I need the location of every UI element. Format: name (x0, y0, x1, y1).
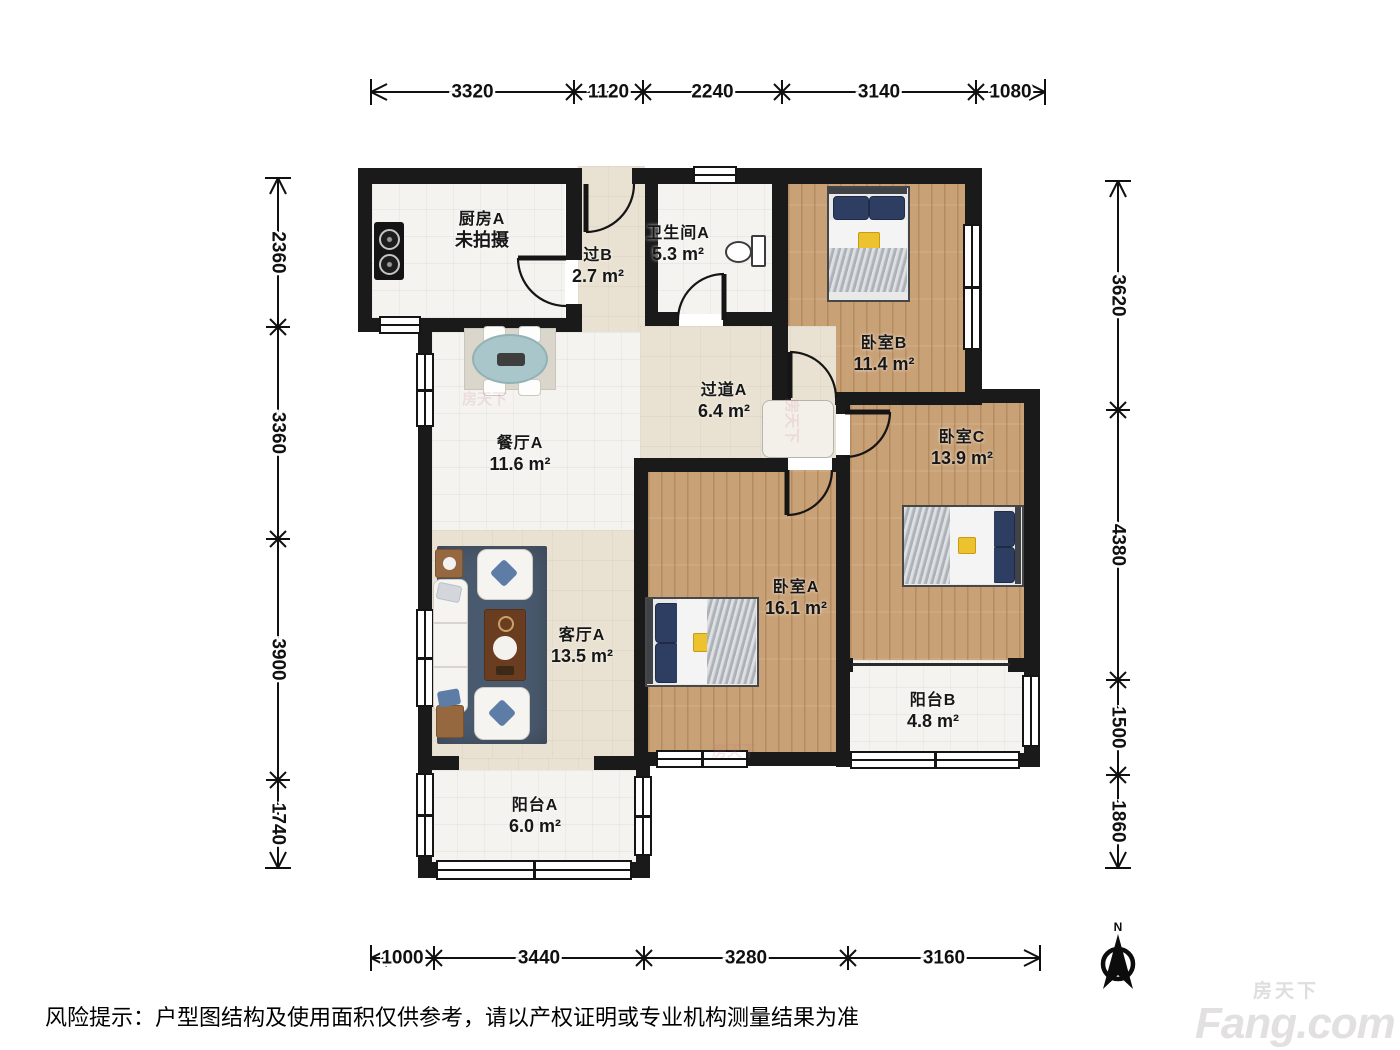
dimension-line-left (265, 178, 291, 868)
room-name: 阳台B (907, 690, 959, 711)
dimension-lines: 3320112022403140108010003440328031602360… (265, 79, 1131, 971)
dim-label-top-2: 2240 (691, 82, 733, 103)
room-name: 卧室B (853, 333, 914, 354)
floorplan-canvas: N 33201120224031401080100034403280316023… (0, 0, 1400, 1050)
room-label-balcony-a: 阳台A 6.0 m² (509, 795, 561, 837)
dim-label-left-2: 3900 (268, 638, 289, 680)
dim-label-bottom-3: 3160 (923, 948, 965, 969)
room-area: 5.3 m² (646, 244, 710, 265)
room-name: 阳台A (509, 795, 561, 816)
dim-label-right-0: 3620 (1108, 274, 1129, 316)
room-label-balcony-b: 阳台B 4.8 m² (907, 690, 959, 732)
room-label-hallway-a: 过道A 6.4 m² (698, 380, 750, 422)
dim-label-left-1: 3360 (268, 412, 289, 454)
room-label-living-a: 客厅A 13.5 m² (551, 625, 613, 667)
dim-label-bottom-1: 3440 (518, 948, 560, 969)
room-name: 卧室C (931, 427, 993, 448)
dim-label-left-0: 2360 (268, 231, 289, 273)
room-label-bedroom-a: 卧室A 16.1 m² (765, 577, 827, 619)
room-name: 餐厅A (489, 433, 550, 454)
overlay-graphics: N 33201120224031401080100034403280316023… (0, 0, 1400, 1050)
room-area: 16.1 m² (765, 598, 827, 619)
risk-disclaimer-text: 风险提示：户型图结构及使用面积仅供参考，请以产权证明或专业机构测量结果为准 (45, 1000, 859, 1032)
room-area: 2.7 m² (572, 266, 624, 287)
dim-label-top-0: 3320 (451, 82, 493, 103)
room-area: 6.4 m² (698, 401, 750, 422)
dim-label-top-3: 3140 (858, 82, 900, 103)
room-name: 卧室A (765, 577, 827, 598)
compass-north-label: N (1114, 920, 1123, 934)
room-label-passage-b: 过B 2.7 m² (572, 245, 624, 287)
watermark: 房天下 (782, 398, 803, 443)
room-label-bedroom-b: 卧室B 11.4 m² (853, 333, 914, 375)
room-name: 过道A (698, 380, 750, 401)
room-name: 过B (572, 245, 624, 266)
room-area: 11.4 m² (853, 354, 914, 375)
room-label-kitchen: 厨房A 未拍摄 (455, 209, 509, 251)
room-area: 6.0 m² (509, 816, 561, 837)
dim-label-top-1: 1120 (588, 82, 629, 103)
watermark: 房天下 (462, 388, 507, 409)
fang-logo-en: Fang.com (1195, 1003, 1395, 1045)
dim-label-top-4: 1080 (989, 82, 1031, 103)
watermark: 房天下 (712, 740, 757, 761)
room-name: 客厅A (551, 625, 613, 646)
dim-label-right-2: 1500 (1108, 706, 1129, 748)
room-area: 13.9 m² (931, 448, 993, 469)
room-name: 卫生间A (646, 223, 710, 244)
dim-label-right-3: 1860 (1108, 800, 1129, 842)
room-name: 厨房A (455, 209, 509, 230)
room-area: 未拍摄 (455, 230, 509, 251)
room-label-bedroom-c: 卧室C 13.9 m² (931, 427, 993, 469)
fang-logo: 房天下 Fang.com (1195, 976, 1395, 1045)
room-label-dining-a: 餐厅A 11.6 m² (489, 433, 550, 475)
dim-label-left-3: 1740 (268, 803, 289, 845)
dim-label-bottom-2: 3280 (725, 948, 767, 969)
room-label-bathroom: 卫生间A 5.3 m² (646, 223, 710, 265)
dim-label-right-1: 4380 (1108, 524, 1129, 566)
room-area: 4.8 m² (907, 711, 959, 732)
room-area: 13.5 m² (551, 646, 613, 667)
compass-icon: N (1103, 920, 1133, 989)
dim-label-bottom-0: 1000 (381, 948, 423, 969)
room-area: 11.6 m² (489, 454, 550, 475)
